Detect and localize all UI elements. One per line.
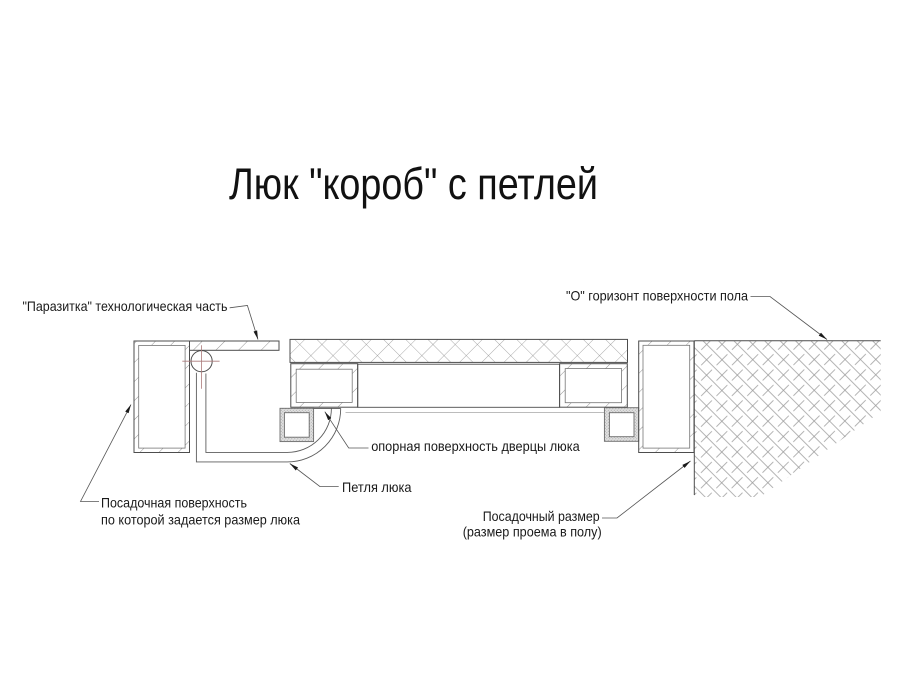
svg-text:опорная поверхность дверцы люк: опорная поверхность дверцы люка [371,438,580,454]
svg-text:"О" горизонт поверхности пола: "О" горизонт поверхности пола [566,288,748,304]
svg-text:Посадочный размер: Посадочный размер [483,508,600,524]
svg-text:Посадочная поверхность: Посадочная поверхность [101,495,247,511]
svg-text:Петля люка: Петля люка [342,479,412,495]
svg-text:"Паразитка" технологическая ча: "Паразитка" технологическая часть [23,298,228,314]
svg-text:по которой задается размер люк: по которой задается размер люка [101,511,300,527]
svg-text:(размер проема в полу): (размер проема в полу) [463,523,602,539]
svg-text:Люк "короб" с петлей: Люк "короб" с петлей [229,160,598,209]
